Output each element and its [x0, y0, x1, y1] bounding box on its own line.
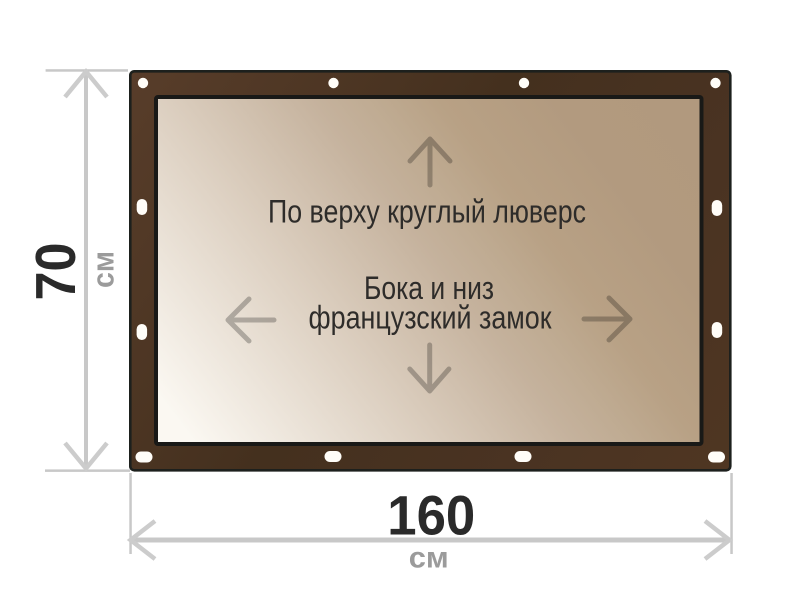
svg-text:По верху круглый люверс: По верху круглый люверс: [268, 193, 586, 229]
svg-text:160: 160: [387, 483, 475, 546]
svg-text:французский замок: французский замок: [309, 299, 553, 335]
svg-text:см: см: [86, 251, 121, 288]
svg-text:см: см: [409, 542, 449, 575]
svg-text:70: 70: [24, 243, 87, 301]
